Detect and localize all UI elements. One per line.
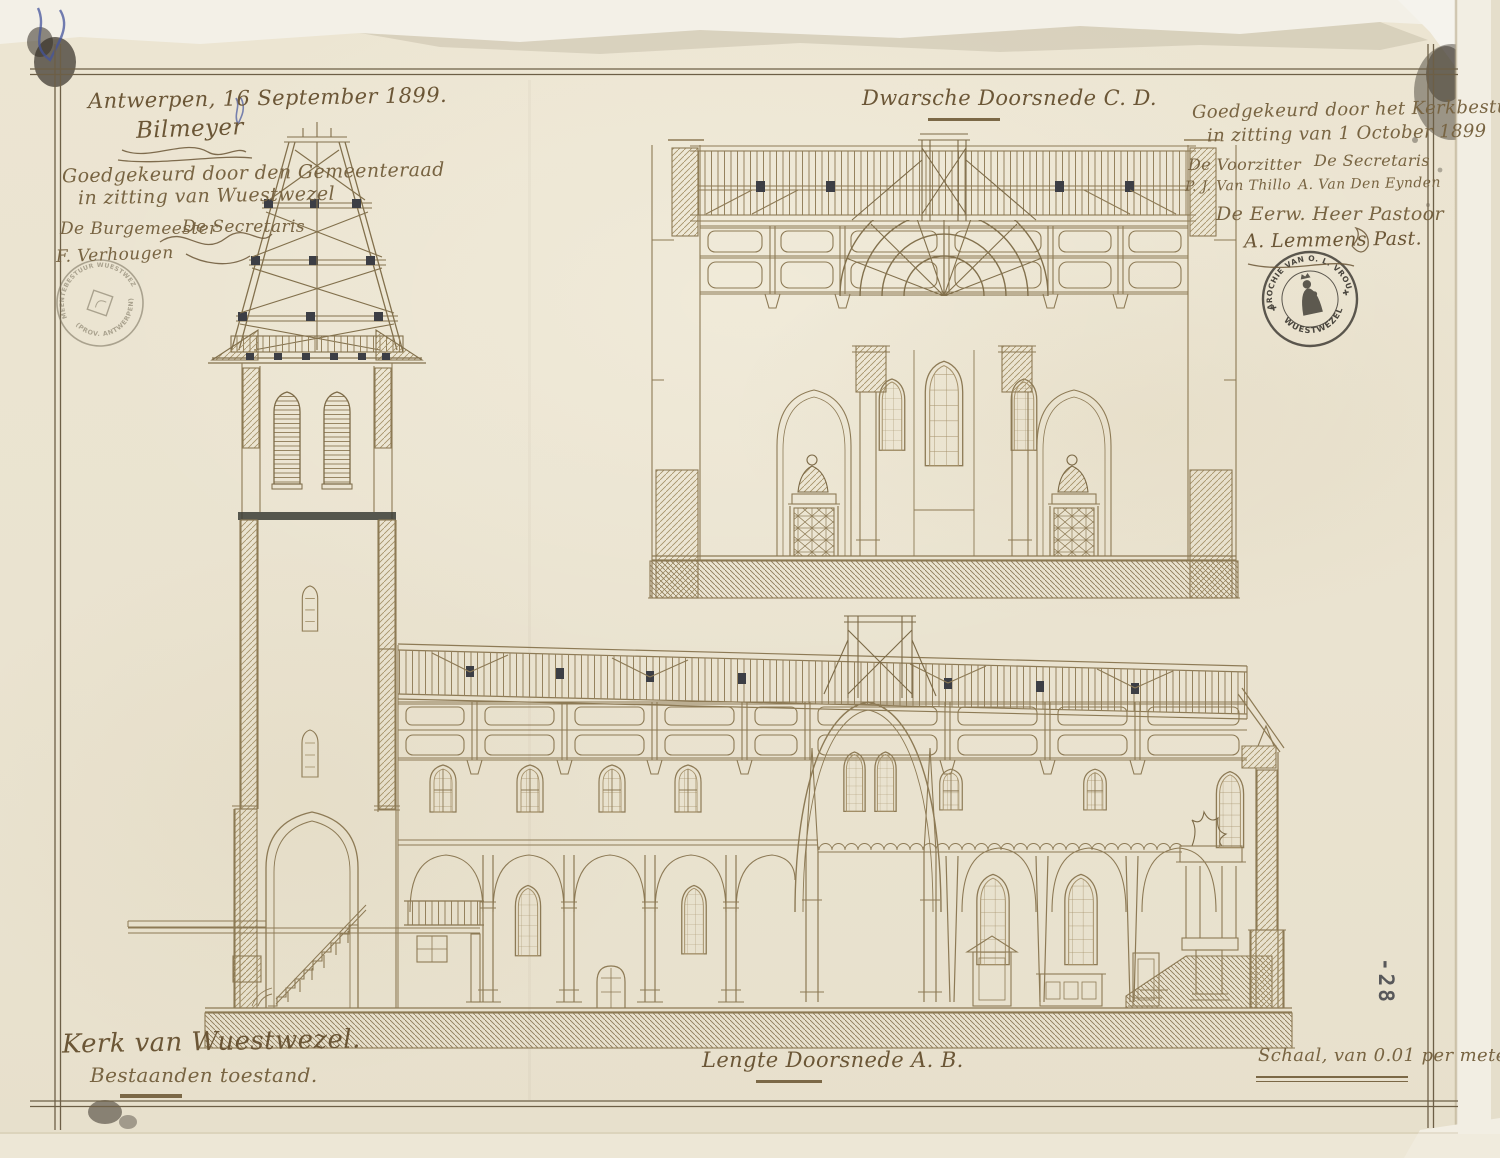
secretaris-label: De Secretaris <box>182 218 305 238</box>
caption-underline <box>120 1094 182 1098</box>
drawing-sheet: PAROCHIE VAN O. L. VROUW WUESTWEZEL ✚ ✚ … <box>0 0 1500 1158</box>
stamp-cross-icon: ✚ <box>1269 303 1278 313</box>
tower-staircase <box>252 905 366 1006</box>
belfry-louvre-window <box>272 392 302 489</box>
title-underline <box>756 1080 822 1083</box>
burgemeester-signature: F. Verhougen <box>56 244 174 268</box>
tower-lancet-window <box>302 730 318 777</box>
board-secretaris-signature: A. Van Den Eynden <box>1298 175 1441 194</box>
longitudinal-section-title: Lengte Doorsnede A. B. <box>702 1048 964 1072</box>
wall-bracket <box>233 956 261 982</box>
tower-spire <box>208 122 426 363</box>
belfry-louvre-window <box>322 392 352 489</box>
nave-door <box>597 966 625 1008</box>
drawing-caption-subtitle: Bestaanden toestand. <box>90 1064 318 1087</box>
clerestory-windows <box>430 765 1106 812</box>
pastoor-label: De Eerw. Heer Pastoor <box>1216 204 1444 226</box>
voorzitter-signature: P. J. Van Thillo <box>1185 177 1291 195</box>
madonna-icon <box>1295 271 1323 315</box>
tower-belfry <box>238 363 396 520</box>
chancel-window <box>1065 874 1097 964</box>
scale-underline <box>1256 1076 1408 1078</box>
ground-band <box>200 1008 1295 1048</box>
title-underline <box>928 118 1000 121</box>
council-approval-line2: in zitting van Wuestwezel <box>78 184 335 210</box>
board-secretaris-label: De Secretaris <box>1314 152 1430 170</box>
tower-body <box>128 520 400 1008</box>
scalloped-frieze <box>818 840 1182 852</box>
aisle-window <box>682 885 706 953</box>
statue <box>798 455 828 492</box>
architect-signature: Bilmeyer <box>136 114 245 144</box>
tower-lancet-window <box>302 586 317 631</box>
drawing-caption-title: Kerk van Wuestwezel. <box>62 1025 361 1060</box>
archive-number-stamp: -28 <box>1374 958 1398 1005</box>
aisle-window <box>515 885 540 955</box>
organ-gallery <box>128 901 486 1002</box>
side-altar-niche <box>777 390 851 556</box>
svg-text:(PROV. ANTWERPEN): (PROV. ANTWERPEN) <box>73 295 146 350</box>
chancel-window <box>977 874 1009 964</box>
scale-underline <box>1256 1081 1408 1082</box>
transverse-section-title: Dwarsche Doorsnede C. D. <box>862 86 1082 110</box>
transverse-section-drawing <box>648 134 1240 598</box>
transverse-ground <box>648 556 1240 598</box>
architect-signature-flourish <box>118 147 252 161</box>
parish-stamp: PAROCHIE VAN O. L. VROUW WUESTWEZEL ✚ ✚ <box>1254 243 1365 354</box>
scale-note: Schaal, van 0.01 per meter. <box>1258 1046 1500 1067</box>
nave-arcade <box>410 855 795 1008</box>
municipal-stamp-bottom-text: (PROV. ANTWERPEN) <box>73 295 146 350</box>
transverse-roof-truss <box>690 134 1196 221</box>
coat-of-arms-icon <box>81 284 119 322</box>
pastoor-signature: A. Lemmens Past. <box>1244 228 1422 253</box>
chancel-end-window <box>1216 772 1243 848</box>
altar-bench <box>1036 974 1106 1006</box>
voorzitter-label: De Voorzitter <box>1188 156 1301 174</box>
